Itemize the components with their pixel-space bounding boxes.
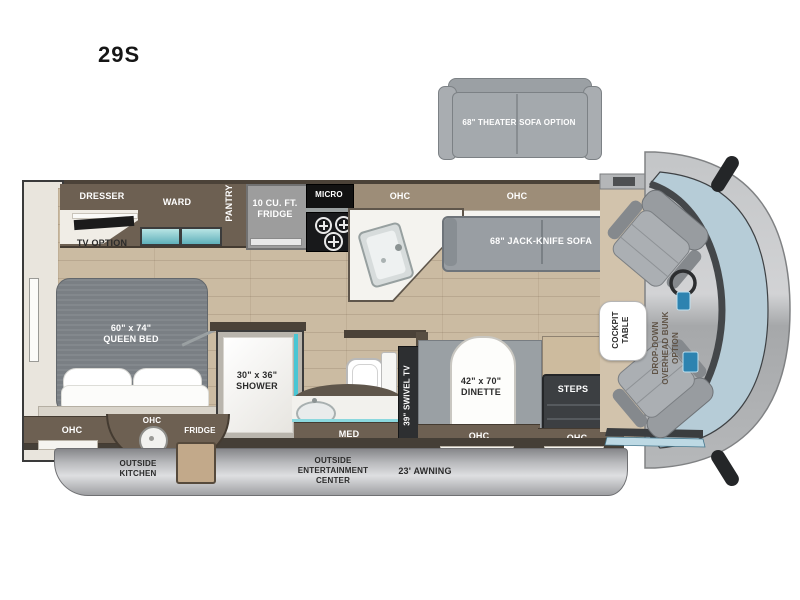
pantry-label: PANTRY [224,175,236,231]
queen-bed-label: 60" x 74" QUEEN BED [69,323,193,346]
awning-label: 23' AWNING [382,466,468,477]
microwave-label: MICRO [306,190,352,200]
slide-window-1 [140,227,181,246]
ward-label: WARD [137,197,217,208]
burner-icon [324,232,343,251]
tv-option-label: TV OPTION [60,238,144,249]
outside-entertainment-label: OUTSIDE ENTERTAINMENT CENTER [283,456,383,486]
fridge-10cuft-label: 10 CU. FT. FRIDGE [246,198,304,221]
page-title: 29S [98,42,140,68]
entry-door-window [605,437,705,447]
ohc-label-kitchen: OHC [370,191,430,202]
dinette-label: 42" x 70" DINETTE [446,376,516,399]
outside-kitchen-label: OUTSIDE KITCHEN [98,459,178,479]
ohc-label-outside-kitchen: OHC [122,416,182,426]
kitchen-faucet-icon [395,244,402,251]
cockpit-table-label: COCKPIT TABLE [611,280,633,380]
dresser-label: DRESSER [62,191,142,202]
kitchen-sink-drain [381,258,386,263]
mirror-bottom-icon [708,447,741,488]
kitchen-sink-basin [366,230,407,281]
floorplan-canvas: 29S 68" THEATER SOFA OPTION DRESSER WARD… [0,0,800,600]
console-cup-2 [683,352,698,372]
fridge-door-strip [250,238,302,246]
outside-kitchen-door [176,442,216,484]
rear-window [29,278,39,362]
outside-kitchen-sink-drain [149,436,154,441]
vanity-faucet-icon [312,398,317,403]
burner-icon [315,217,332,234]
fridge-outside-label: FRIDGE [172,426,228,436]
drop-down-bunk-label: DROP-DOWN OVERHEAD BUNK OPTION [651,273,685,423]
shower-label: 30" x 36" SHOWER [217,370,297,393]
slide-window-2 [180,227,222,246]
bath-wall-toilet [344,330,426,338]
theater-sofa-label: 68" THEATER SOFA OPTION [444,118,594,128]
cab-top-vent [613,177,635,186]
ohc-label-bedroom: OHC [42,425,102,436]
swivel-tv-label: 39" SWIVEL TV [403,356,414,436]
ohc-label-sofa: OHC [487,191,547,202]
